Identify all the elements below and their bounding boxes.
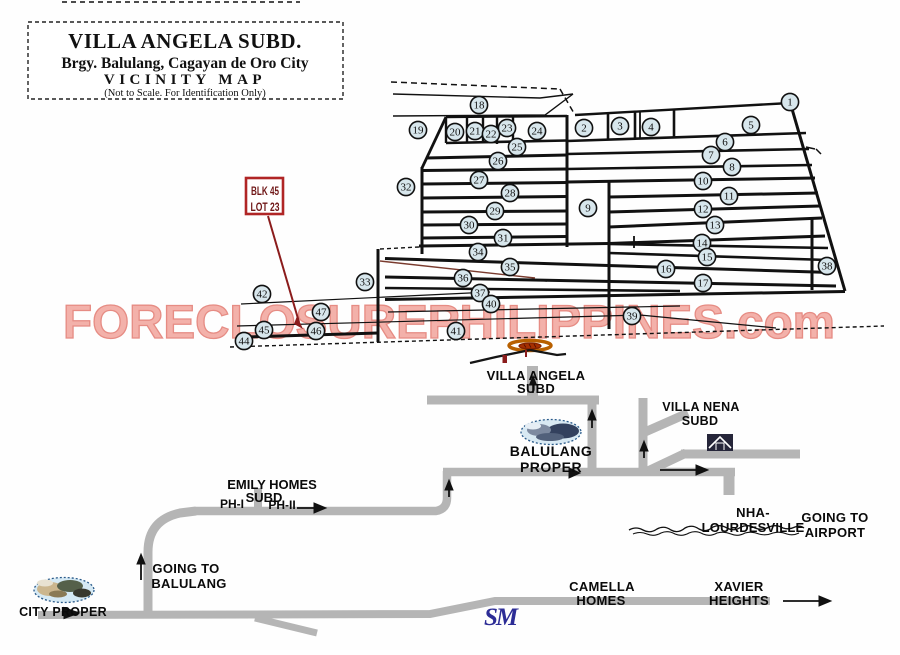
svg-text:PH-I: PH-I	[220, 497, 244, 511]
svg-text:SUBD: SUBD	[682, 414, 719, 428]
svg-text:11: 11	[724, 191, 735, 203]
svg-text:2: 2	[581, 123, 587, 135]
svg-text:38: 38	[822, 261, 834, 273]
svg-text:6: 6	[722, 137, 728, 149]
svg-text:28: 28	[505, 188, 517, 200]
svg-text:(Not to Scale. For Identifica: (Not to Scale. For Identification Only)	[104, 88, 266, 99]
svg-text:20: 20	[450, 127, 462, 139]
svg-text:7: 7	[708, 150, 714, 162]
svg-text:25: 25	[512, 142, 524, 154]
svg-text:SM: SM	[484, 604, 519, 631]
svg-text:BLK 45: BLK 45	[251, 184, 279, 198]
svg-text:PROPER: PROPER	[520, 459, 582, 475]
svg-text:44: 44	[239, 336, 251, 348]
svg-text:CITY PROPER: CITY PROPER	[19, 605, 107, 619]
svg-text:VICINITY MAP: VICINITY MAP	[104, 72, 266, 88]
svg-text:31: 31	[498, 233, 509, 245]
svg-text:47: 47	[316, 307, 328, 319]
svg-text:LOT 23: LOT 23	[251, 200, 280, 214]
svg-text:GOING TO: GOING TO	[152, 561, 219, 576]
svg-text:32: 32	[401, 182, 412, 194]
svg-text:10: 10	[698, 176, 710, 188]
svg-text:BALULANG: BALULANG	[151, 576, 226, 591]
svg-text:30: 30	[464, 220, 476, 232]
svg-text:27: 27	[474, 175, 486, 187]
svg-text:PH-II: PH-II	[268, 498, 295, 512]
svg-text:22: 22	[486, 129, 497, 141]
svg-text:46: 46	[311, 326, 323, 338]
svg-text:15: 15	[702, 252, 714, 264]
svg-text:Brgy. Balulang, Cagayan de Oro: Brgy. Balulang, Cagayan de Oro City	[61, 55, 309, 72]
svg-text:4: 4	[648, 122, 654, 134]
svg-text:5: 5	[748, 120, 754, 132]
svg-text:LOURDESVILLE: LOURDESVILLE	[702, 520, 805, 535]
svg-text:VILLA NENA: VILLA NENA	[662, 400, 740, 414]
svg-text:13: 13	[710, 220, 722, 232]
svg-text:26: 26	[493, 156, 505, 168]
svg-text:12: 12	[698, 204, 709, 216]
svg-text:AIRPORT: AIRPORT	[805, 525, 866, 540]
svg-text:BALULANG: BALULANG	[510, 443, 593, 459]
svg-text:39: 39	[627, 311, 639, 323]
svg-text:42: 42	[257, 289, 268, 301]
svg-text:18: 18	[474, 100, 486, 112]
svg-text:33: 33	[360, 277, 372, 289]
svg-text:NHA-: NHA-	[736, 505, 770, 520]
svg-text:17: 17	[698, 278, 710, 290]
svg-text:GOING TO: GOING TO	[801, 510, 868, 525]
svg-text:23: 23	[502, 123, 514, 135]
svg-text:21: 21	[470, 126, 481, 138]
svg-text:34: 34	[473, 247, 485, 259]
svg-text:8: 8	[729, 162, 735, 174]
svg-text:19: 19	[413, 125, 425, 137]
svg-text:45: 45	[259, 325, 271, 337]
svg-text:1: 1	[787, 97, 793, 109]
svg-text:3: 3	[617, 121, 623, 133]
svg-text:VILLA ANGELA SUBD.: VILLA ANGELA SUBD.	[68, 29, 302, 53]
svg-text:HOMES: HOMES	[576, 593, 625, 608]
svg-text:40: 40	[486, 299, 498, 311]
svg-text:24: 24	[532, 126, 544, 138]
svg-text:SUBD: SUBD	[517, 381, 555, 396]
svg-text:9: 9	[585, 203, 591, 215]
svg-text:XAVIER: XAVIER	[714, 579, 764, 594]
svg-text:29: 29	[490, 206, 502, 218]
svg-text:CAMELLA: CAMELLA	[569, 579, 635, 594]
svg-text:35: 35	[505, 262, 517, 274]
svg-text:16: 16	[661, 264, 673, 276]
svg-text:36: 36	[458, 273, 470, 285]
svg-text:HEIGHTS: HEIGHTS	[709, 593, 769, 608]
svg-text:41: 41	[451, 326, 462, 338]
